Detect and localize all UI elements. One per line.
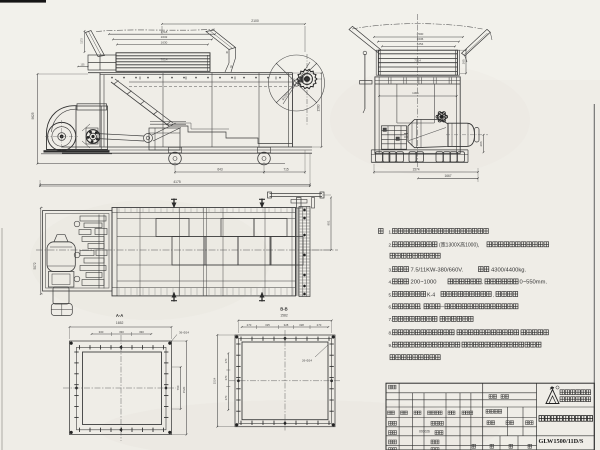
svg-text:091026: 091026: [419, 430, 430, 434]
svg-text:7014: 7014: [160, 58, 167, 62]
svg-text:1582: 1582: [280, 313, 288, 317]
svg-text:3.: 3.: [389, 267, 393, 272]
svg-text:5072: 5072: [33, 262, 37, 269]
svg-text:1524: 1524: [213, 377, 217, 384]
svg-text:6.: 6.: [389, 305, 393, 310]
svg-text:4300/4400kg.: 4300/4400kg.: [491, 267, 527, 273]
svg-text:330: 330: [99, 330, 104, 334]
svg-text:1630: 1630: [161, 40, 168, 44]
svg-text:5.: 5.: [389, 292, 393, 297]
svg-text:328: 328: [284, 323, 289, 327]
svg-text:A-A: A-A: [116, 313, 123, 318]
svg-text:1301: 1301: [412, 91, 419, 95]
svg-text:,: ,: [518, 331, 519, 336]
svg-text:206: 206: [479, 141, 483, 146]
svg-text:,: ,: [459, 343, 460, 348]
svg-text:270: 270: [247, 323, 252, 327]
svg-text:8.: 8.: [389, 331, 393, 336]
svg-text:1580: 1580: [317, 104, 321, 111]
svg-text:36-Φ24: 36-Φ24: [179, 331, 189, 335]
svg-text:0~550mm.: 0~550mm.: [520, 280, 548, 286]
svg-text:,: ,: [436, 317, 437, 322]
svg-text:2100: 2100: [251, 19, 259, 23]
svg-text:4.: 4.: [389, 280, 393, 285]
svg-text:1636: 1636: [417, 37, 424, 41]
svg-text:9625: 9625: [31, 112, 35, 119]
svg-text:1718: 1718: [161, 30, 168, 34]
svg-text:,: ,: [522, 343, 523, 348]
svg-text:643: 643: [217, 167, 223, 171]
svg-text:7.5/11KW-380/660V.: 7.5/11KW-380/660V.: [411, 267, 464, 273]
svg-text:K-4: K-4: [427, 292, 435, 298]
svg-text:1520: 1520: [182, 386, 186, 393]
svg-text:270: 270: [317, 323, 322, 327]
svg-text:2500: 2500: [417, 32, 424, 36]
svg-text:B: B: [230, 65, 232, 69]
svg-text:B-B: B-B: [280, 307, 287, 312]
svg-text:760: 760: [176, 385, 180, 390]
svg-text:7014: 7014: [414, 59, 421, 63]
svg-text:330: 330: [119, 330, 124, 334]
svg-text:901: 901: [326, 220, 330, 225]
svg-text:1254: 1254: [417, 42, 424, 46]
svg-text:1.: 1.: [389, 229, 393, 234]
svg-text:7.: 7.: [389, 317, 393, 322]
svg-text:一: 一: [440, 305, 445, 310]
svg-text:715: 715: [283, 167, 289, 171]
svg-text:1667: 1667: [444, 174, 451, 178]
svg-text:1632: 1632: [161, 35, 168, 39]
svg-text:1574: 1574: [412, 167, 419, 171]
svg-text:9.: 9.: [389, 343, 393, 348]
svg-text:105: 105: [81, 63, 86, 66]
svg-text:325: 325: [265, 323, 270, 327]
svg-text:1175: 1175: [80, 38, 84, 44]
svg-text:26-Φ24: 26-Φ24: [302, 359, 312, 363]
svg-text:170: 170: [224, 358, 228, 363]
svg-text:1652: 1652: [116, 321, 124, 325]
svg-text:2.: 2.: [389, 243, 393, 248]
svg-text:370: 370: [224, 375, 228, 380]
svg-text:4175: 4175: [173, 180, 181, 184]
svg-text:200~1000: 200~1000: [411, 280, 437, 286]
svg-text:328: 328: [299, 323, 304, 327]
svg-text:265: 265: [461, 59, 465, 64]
svg-text:170: 170: [224, 395, 228, 400]
svg-text:,: ,: [482, 280, 483, 285]
svg-text:GLW1500/11D/S: GLW1500/11D/S: [539, 438, 584, 445]
svg-text:,: ,: [493, 292, 494, 297]
svg-text:,: ,: [420, 305, 421, 310]
svg-text:,: ,: [453, 331, 454, 336]
svg-text:330: 330: [139, 330, 144, 334]
svg-text:(宽1300X高1000),: (宽1300X高1000),: [439, 242, 479, 249]
